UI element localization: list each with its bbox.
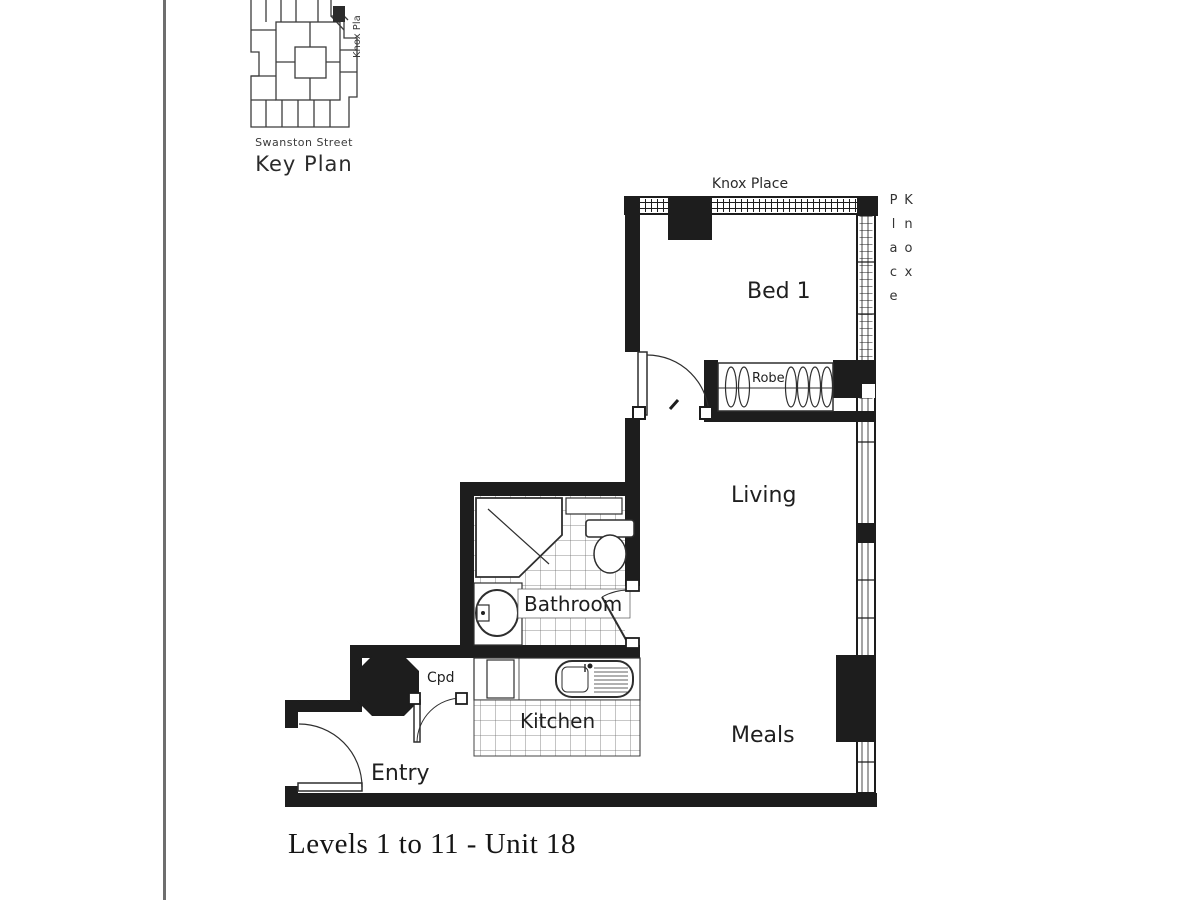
room-label-living: Living xyxy=(731,483,796,508)
bathroom-shelf xyxy=(566,498,622,514)
floor-plan-drawing: Bed 1 Living Meals Kitchen Bathroom Entr… xyxy=(0,0,1200,900)
wall-bathroom-top xyxy=(460,482,640,496)
unit-floor-plan: Bed 1 Living Meals Kitchen Bathroom Entr… xyxy=(285,197,878,807)
wall-bed-left-upper xyxy=(625,198,640,352)
scanned-floor-plan-page: Bed 1 Living Meals Kitchen Bathroom Entr… xyxy=(0,0,1200,900)
room-label-bed1: Bed 1 xyxy=(747,279,811,304)
window-top xyxy=(625,197,877,214)
key-plan-map xyxy=(251,0,357,127)
column-entry-octagon xyxy=(357,656,419,716)
cupboard-door xyxy=(409,693,467,742)
wall-bathroom-left xyxy=(460,482,474,658)
kitchen-area xyxy=(474,658,640,756)
key-plan-side-street-label: Knox Pla xyxy=(352,15,363,58)
column-meals xyxy=(836,655,875,742)
room-label-robe: Robe xyxy=(752,371,785,386)
key-plan-title: Key Plan xyxy=(244,152,364,176)
kitchen-sink-fixture xyxy=(556,661,633,697)
street-label-knox-place-right: Knox Place xyxy=(886,193,916,413)
key-plan-highlighted-unit xyxy=(333,6,345,22)
room-label-kitchen: Kitchen xyxy=(520,709,595,733)
column-top-right-corner xyxy=(857,197,878,216)
vanity-basin-fixture xyxy=(474,583,522,645)
wall-kitchen-top xyxy=(460,645,640,658)
room-label-cupboard: Cpd xyxy=(427,670,455,686)
wall-bathroom-right xyxy=(625,496,640,586)
wall-robe-bottom xyxy=(704,411,875,422)
wall-entry-top xyxy=(350,645,474,658)
entry-door xyxy=(298,724,362,791)
street-label-knox-place-top: Knox Place xyxy=(700,176,800,192)
bathroom-area xyxy=(474,496,639,648)
bed-door xyxy=(633,352,712,419)
wall-entry-door-jamb-upper xyxy=(285,700,298,728)
room-label-meals: Meals xyxy=(731,723,795,748)
room-label-entry: Entry xyxy=(371,761,430,786)
room-label-bathroom: Bathroom xyxy=(524,592,622,616)
column-top xyxy=(668,198,712,240)
column-robe-notch xyxy=(862,384,875,398)
window-mullion-block xyxy=(857,523,875,543)
plan-caption: Levels 1 to 11 - Unit 18 xyxy=(288,828,576,861)
wall-bottom xyxy=(285,793,877,807)
kitchen-appliance xyxy=(487,660,514,698)
key-plan-street-label: Swanston Street xyxy=(254,136,354,149)
